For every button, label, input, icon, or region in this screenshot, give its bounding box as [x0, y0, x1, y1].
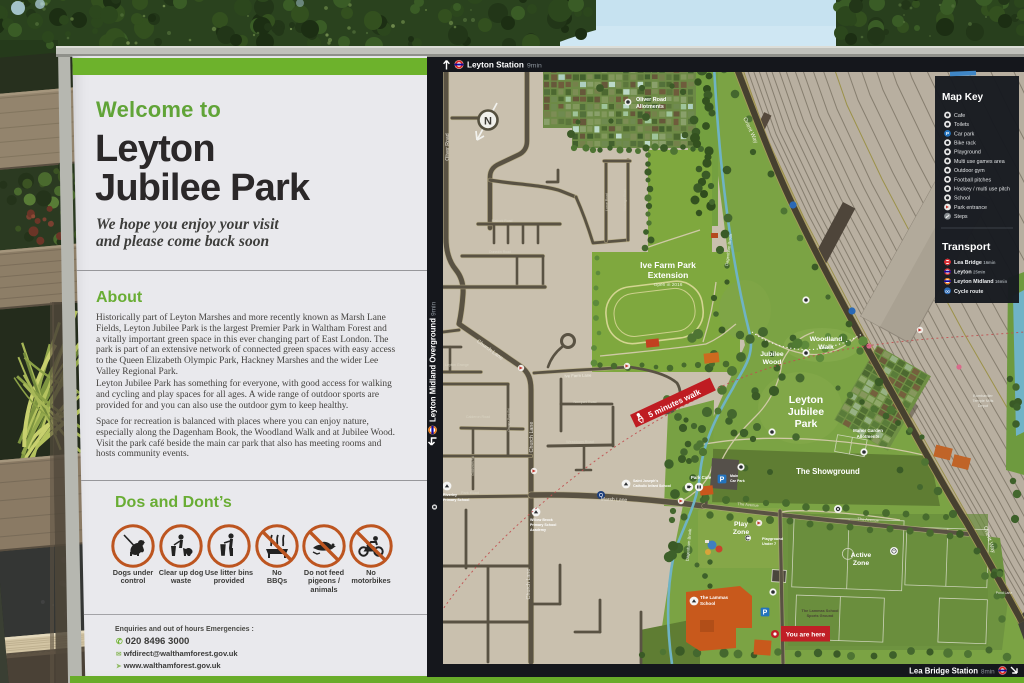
svg-text:Pond Lane: Pond Lane: [996, 591, 1013, 595]
svg-text:Church Lane: Church Lane: [529, 422, 535, 453]
svg-text:Main: Main: [730, 474, 738, 478]
svg-text:Leyton Midland Overground 9min: Leyton Midland Overground 9min: [429, 301, 438, 422]
svg-text:Oliver Road: Oliver Road: [445, 133, 451, 161]
svg-text:Multi use games area: Multi use games area: [954, 159, 1005, 165]
svg-text:Lorne Road: Lorne Road: [605, 193, 609, 211]
svg-text:Goldsmith Rd: Goldsmith Rd: [471, 456, 475, 476]
svg-text:Park Road: Park Road: [461, 491, 479, 495]
svg-text:Outdoor gym: Outdoor gym: [954, 168, 985, 174]
svg-text:Wood: Wood: [763, 359, 782, 366]
svg-text:Park Cafe: Park Cafe: [691, 475, 712, 480]
svg-text:Transport: Transport: [942, 241, 991, 253]
svg-text:Under 7: Under 7: [762, 542, 776, 546]
svg-text:9min: 9min: [527, 62, 542, 69]
svg-text:Leyton: Leyton: [789, 394, 823, 406]
svg-text:Dunedin Road: Dunedin Road: [489, 250, 511, 254]
svg-text:Academy: Academy: [530, 528, 546, 532]
svg-text:Park: Park: [795, 418, 818, 430]
svg-text:Newport Road: Newport Road: [574, 400, 597, 404]
svg-text:Extension: Extension: [648, 270, 689, 280]
svg-text:Jubilee: Jubilee: [760, 351, 784, 358]
svg-text:Map Key: Map Key: [942, 92, 984, 103]
svg-text:Cafe: Cafe: [954, 113, 965, 119]
svg-text:Sports Ground: Sports Ground: [807, 614, 834, 618]
svg-text:Ive Farm Park: Ive Farm Park: [640, 260, 696, 270]
svg-text:Marsh Lane: Marsh Lane: [601, 497, 628, 504]
svg-text:Toilets: Toilets: [954, 122, 969, 128]
svg-text:Westdown Road: Westdown Road: [566, 440, 594, 444]
svg-text:Riverley: Riverley: [443, 493, 457, 497]
svg-text:The Showground: The Showground: [796, 467, 860, 476]
svg-text:P: P: [763, 610, 768, 617]
svg-text:Lea Bridge Station: Lea Bridge Station: [909, 667, 978, 676]
svg-text:P: P: [720, 477, 725, 484]
svg-text:Oliver Road: Oliver Road: [636, 97, 666, 103]
svg-text:Play: Play: [734, 521, 748, 528]
svg-text:Catholic Infant School: Catholic Infant School: [633, 484, 671, 488]
svg-text:Jubilee: Jubilee: [788, 406, 824, 418]
svg-text:Vicarage Road: Vicarage Road: [623, 189, 627, 211]
svg-text:Steps: Steps: [954, 214, 968, 220]
svg-text:Ive Farm Lane: Ive Farm Lane: [564, 373, 592, 379]
svg-text:Allotments: Allotments: [857, 434, 880, 439]
svg-text:Church Lane: Church Lane: [526, 569, 532, 600]
svg-text:School: School: [700, 601, 715, 606]
svg-text:Allotments: Allotments: [636, 104, 664, 110]
svg-text:Hockey / multi use pitch: Hockey / multi use pitch: [954, 187, 1010, 193]
svg-text:Park entrance: Park entrance: [954, 205, 987, 211]
svg-text:Bike rack: Bike rack: [954, 141, 976, 147]
svg-text:Saint Joseph's: Saint Joseph's: [633, 479, 658, 483]
svg-text:The Lammas School: The Lammas School: [802, 609, 839, 613]
svg-text:Cycle route: Cycle route: [954, 289, 983, 295]
svg-text:Manor Garden: Manor Garden: [853, 428, 883, 433]
svg-text:Bombardier: Bombardier: [973, 394, 993, 398]
svg-text:Primary School: Primary School: [530, 523, 556, 527]
svg-text:Calderon Road: Calderon Road: [466, 415, 490, 419]
svg-text:Leyton Grange: Leyton Grange: [445, 363, 469, 367]
svg-text:School: School: [954, 196, 970, 202]
svg-text:8min: 8min: [981, 668, 995, 675]
svg-text:Zone: Zone: [733, 529, 749, 536]
svg-text:Zone: Zone: [853, 560, 869, 567]
svg-text:Woodland: Woodland: [810, 336, 843, 343]
svg-text:Open in 2016: Open in 2016: [654, 282, 683, 288]
svg-text:Playground: Playground: [954, 150, 981, 156]
svg-text:Car park: Car park: [954, 131, 975, 137]
svg-text:The Lammas: The Lammas: [700, 595, 729, 600]
svg-text:Active: Active: [851, 552, 872, 559]
svg-text:Grange Park Rd: Grange Park Rd: [507, 408, 511, 431]
svg-text:Primary School: Primary School: [443, 498, 469, 502]
svg-text:Depot: Depot: [978, 404, 989, 408]
svg-text:Willow Brook: Willow Brook: [530, 518, 553, 522]
svg-text:P: P: [946, 131, 949, 136]
svg-text:N: N: [484, 116, 492, 128]
svg-text:Football pitches: Football pitches: [954, 177, 991, 183]
svg-text:You are here: You are here: [786, 632, 826, 639]
svg-text:Leyton Station: Leyton Station: [467, 61, 524, 70]
svg-text:Matlock Road: Matlock Road: [492, 219, 513, 223]
svg-text:Walk: Walk: [818, 344, 834, 351]
svg-text:Temple Mills: Temple Mills: [973, 399, 994, 403]
svg-text:Playground: Playground: [762, 537, 784, 541]
svg-text:Car Park: Car Park: [730, 479, 745, 483]
